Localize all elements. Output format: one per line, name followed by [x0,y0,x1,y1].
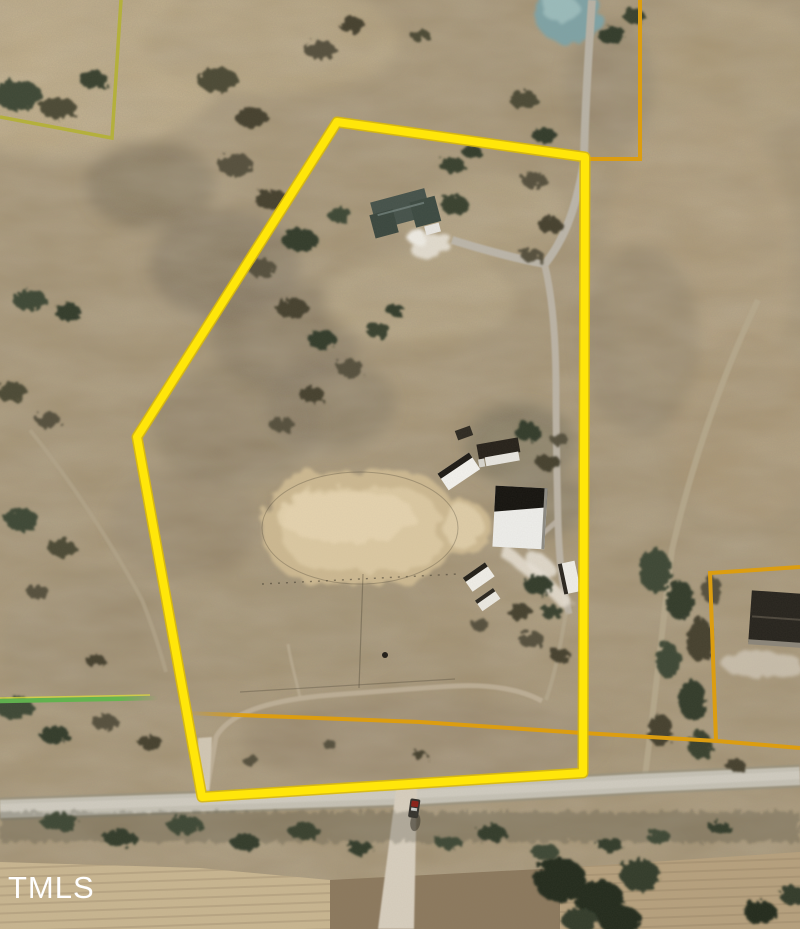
west-parcel-line-green [0,698,158,701]
aerial-map: TMLS [0,0,800,929]
satellite-image: TMLS [0,0,800,929]
watermark: TMLS [8,870,95,905]
